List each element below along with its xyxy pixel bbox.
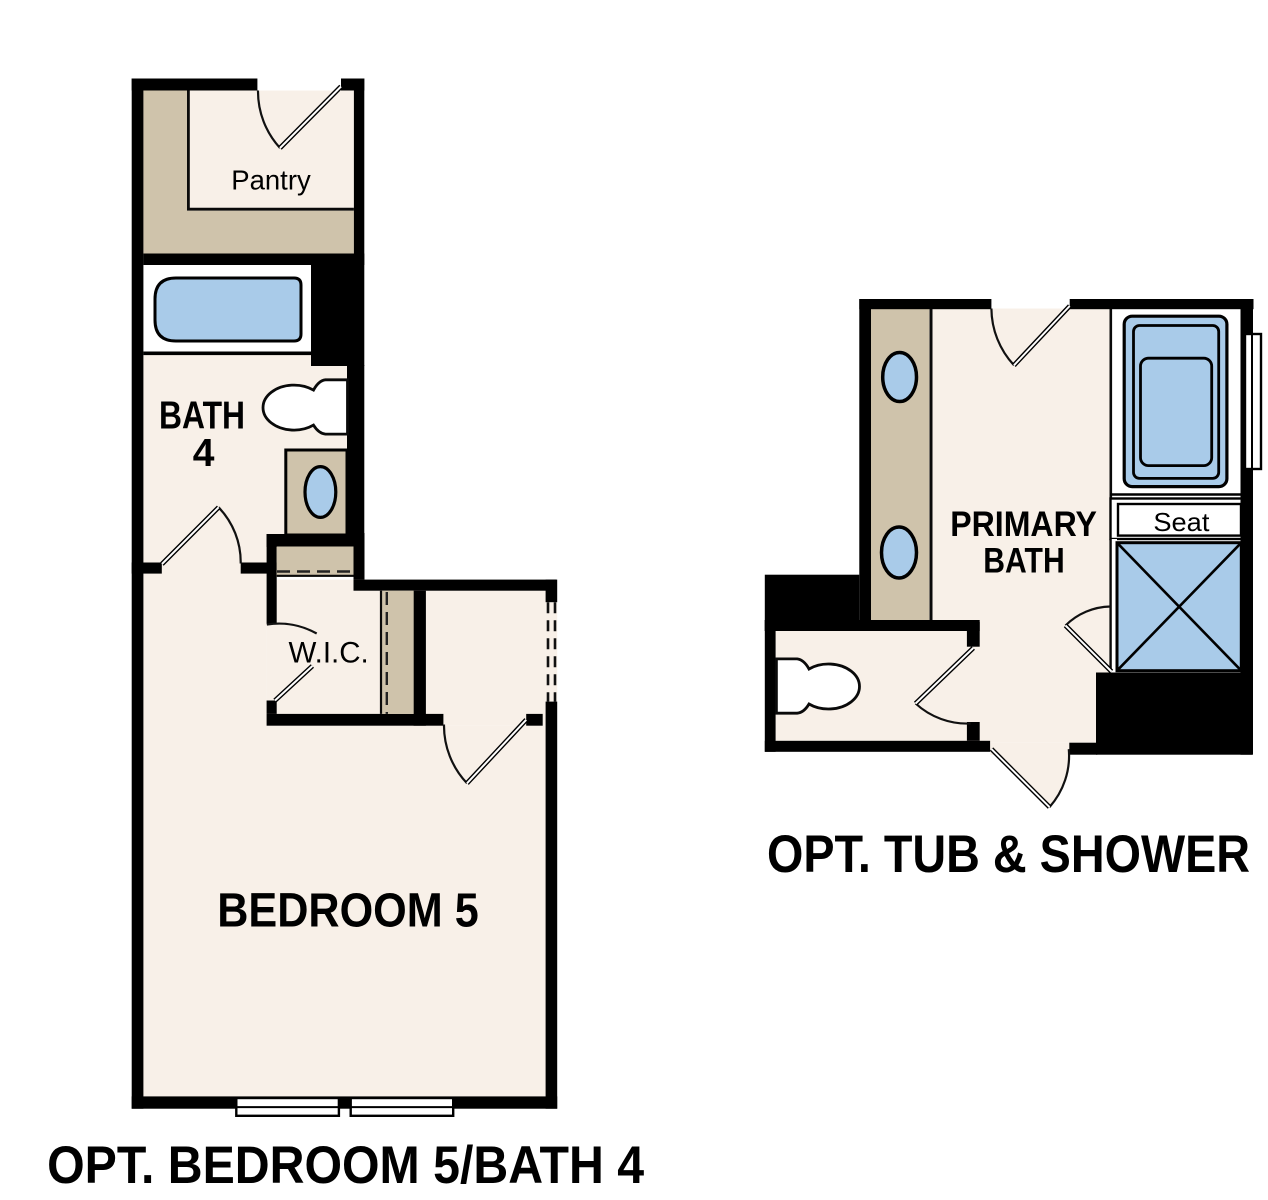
svg-text:BEDROOM 5: BEDROOM 5 bbox=[217, 885, 479, 938]
svg-text:OPT. BEDROOM 5/BATH 4: OPT. BEDROOM 5/BATH 4 bbox=[47, 1136, 645, 1195]
svg-text:W.I.C.: W.I.C. bbox=[288, 637, 368, 670]
svg-text:BATH: BATH bbox=[983, 541, 1064, 581]
svg-text:Seat: Seat bbox=[1153, 507, 1210, 537]
svg-text:PRIMARY: PRIMARY bbox=[950, 504, 1097, 544]
svg-text:OPT. TUB & SHOWER: OPT. TUB & SHOWER bbox=[767, 825, 1250, 884]
svg-text:4: 4 bbox=[193, 432, 215, 475]
svg-text:Pantry: Pantry bbox=[231, 165, 311, 196]
